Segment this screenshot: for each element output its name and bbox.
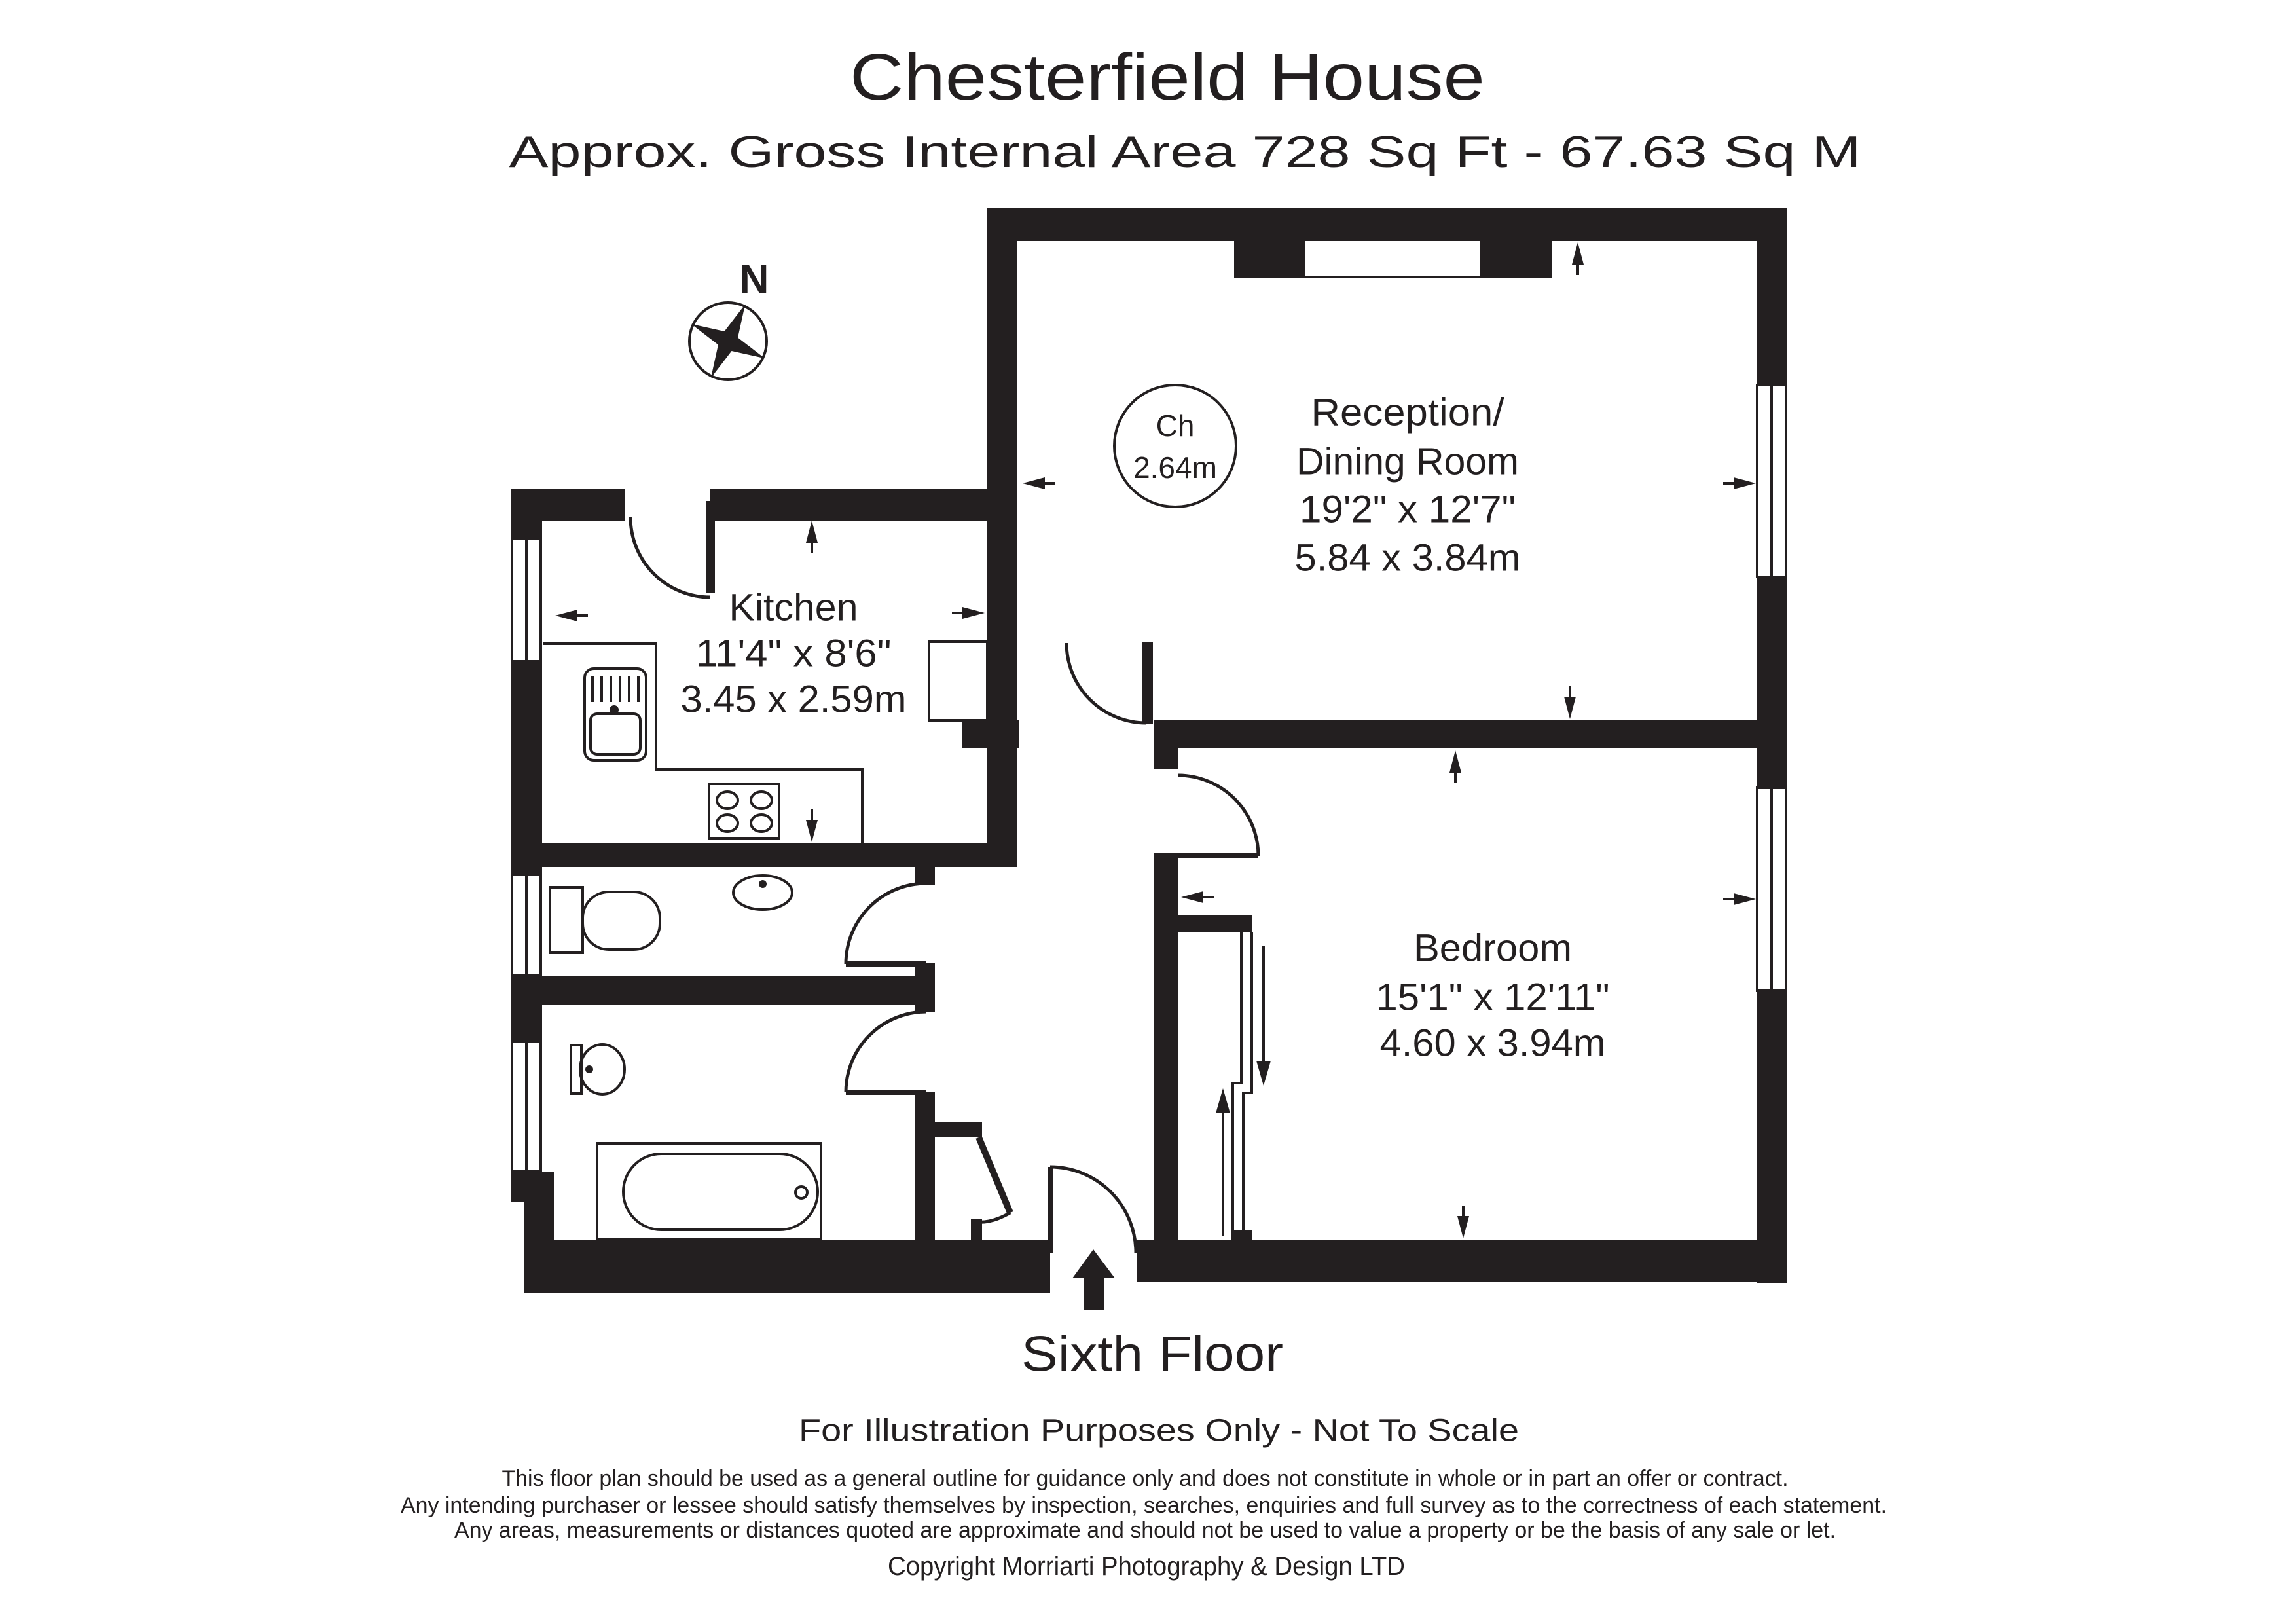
door-reception-leaf bbox=[1142, 642, 1153, 724]
arrow-bedroom-right bbox=[1734, 893, 1756, 905]
ceiling-height-value: 2.64m bbox=[1133, 451, 1217, 485]
disclaimer-line3: Any areas, measurements or distances quo… bbox=[454, 1518, 1836, 1543]
window-bedroom bbox=[1756, 788, 1787, 991]
wall-kitchen-wc-divider bbox=[511, 843, 1017, 867]
wall-hall-left bbox=[987, 208, 1017, 866]
wc-toilet-icon bbox=[550, 887, 660, 953]
scale-note: For Illustration Purposes Only - Not To … bbox=[799, 1414, 1519, 1449]
bedroom-wardrobe bbox=[1178, 915, 1271, 1244]
disclaimer-line1: This floor plan should be used as a gene… bbox=[502, 1466, 1789, 1491]
wall-kitchen-top-right bbox=[710, 489, 987, 521]
kitchen-size-metric: 3.45 x 2.59m bbox=[681, 678, 907, 721]
door-reception bbox=[1066, 642, 1153, 724]
window-bathroom bbox=[511, 1041, 542, 1172]
door-bedroom bbox=[1178, 775, 1258, 856]
door-kitchen-leaf bbox=[706, 501, 715, 593]
wall-cupboard-stub bbox=[962, 720, 1019, 748]
compass-north-label: N bbox=[740, 257, 769, 303]
reception-name-line2: Dining Room bbox=[1296, 441, 1519, 483]
arrow-bedroom-down bbox=[1457, 1216, 1469, 1238]
ceiling-height-label: Ch bbox=[1156, 409, 1195, 443]
door-kitchen-arc bbox=[630, 517, 710, 597]
kitchen-hob-icon bbox=[709, 784, 779, 838]
wall-right-upper bbox=[1757, 208, 1787, 385]
wall-kitchen-top-left bbox=[511, 489, 625, 521]
wall-right-lower bbox=[1757, 991, 1787, 1283]
arrow-reception-right bbox=[1734, 477, 1756, 489]
reception-size-metric: 5.84 x 3.84m bbox=[1295, 537, 1521, 580]
arrow-bedroom-up bbox=[1449, 750, 1461, 773]
hall-cupboard-leaf bbox=[979, 1137, 1010, 1213]
floor-label: Sixth Floor bbox=[1021, 1327, 1283, 1382]
page-subtitle: Approx. Gross Internal Area 728 Sq Ft - … bbox=[509, 127, 1861, 177]
kitchen-sink-icon bbox=[585, 669, 646, 760]
compass-star-icon bbox=[691, 304, 765, 378]
hall-cupboard-top bbox=[933, 1122, 982, 1137]
arrow-kitchen-down bbox=[806, 820, 818, 842]
door-bedroom-arc bbox=[1178, 775, 1258, 856]
arrow-bedroom-left bbox=[1181, 891, 1203, 903]
wall-reception-bedroom-divider bbox=[1154, 720, 1757, 748]
compass-rose: N bbox=[689, 257, 769, 380]
wall-left-step bbox=[511, 1172, 554, 1202]
kitchen-size-imperial: 11'4" x 8'6" bbox=[696, 633, 892, 675]
wall-wc-bath-divider bbox=[542, 976, 935, 1005]
door-bathroom-arc bbox=[846, 1012, 926, 1092]
wall-reception-top bbox=[987, 208, 1787, 241]
window-kitchen bbox=[511, 538, 542, 661]
arrow-reception-left bbox=[1023, 477, 1045, 489]
door-wc bbox=[846, 883, 926, 964]
arrow-reception-up bbox=[1572, 242, 1584, 265]
chimney-recess bbox=[1305, 241, 1480, 276]
entrance-arrow-icon bbox=[1072, 1249, 1115, 1310]
wall-bottom-left bbox=[524, 1240, 1050, 1293]
door-kitchen bbox=[630, 501, 715, 597]
wall-left-kitchen-lower bbox=[511, 661, 542, 874]
arrow-reception-down bbox=[1564, 697, 1576, 719]
door-reception-arc bbox=[1066, 643, 1146, 723]
wall-bedroom-door-jamb bbox=[1154, 748, 1178, 769]
copyright-line: Copyright Morriarti Photography & Design… bbox=[888, 1552, 1405, 1581]
door-entrance-arc bbox=[1050, 1167, 1136, 1253]
arrow-kitchen-left bbox=[555, 610, 577, 621]
reception-name-line1: Reception/ bbox=[1311, 392, 1505, 434]
window-wc bbox=[511, 874, 542, 976]
disclaimer-line2: Any intending purchaser or lessee should… bbox=[401, 1493, 1887, 1518]
wall-bedroom-left bbox=[1154, 853, 1178, 1241]
wall-bottom-right bbox=[1137, 1240, 1787, 1282]
kitchen-cupboard bbox=[929, 642, 987, 720]
door-bathroom bbox=[846, 1012, 926, 1092]
hall-cupboard-door bbox=[933, 1122, 1010, 1240]
window-reception bbox=[1756, 385, 1787, 577]
reception-size-imperial: 19'2" x 12'7" bbox=[1300, 489, 1516, 531]
wall-right-middle bbox=[1757, 577, 1787, 788]
floorplan-page: Chesterfield House Approx. Gross Interna… bbox=[0, 0, 2296, 1624]
ceiling-height-circle bbox=[1114, 385, 1236, 507]
bathroom-basin-icon bbox=[571, 1044, 625, 1094]
page-title: Chesterfield House bbox=[850, 41, 1485, 114]
kitchen-name: Kitchen bbox=[729, 587, 858, 629]
wall-left-wc-bath bbox=[511, 976, 542, 1041]
arrow-kitchen-up bbox=[806, 521, 818, 543]
ceiling-height-badge: Ch 2.64m bbox=[1114, 385, 1236, 507]
bathtub-icon bbox=[597, 1143, 821, 1240]
floorplan-canvas: Chesterfield House Approx. Gross Interna… bbox=[0, 0, 2296, 1624]
door-entrance bbox=[1050, 1167, 1136, 1253]
bedroom-size-imperial: 15'1" x 12'11" bbox=[1376, 976, 1610, 1019]
wc-basin-icon bbox=[733, 876, 792, 910]
hall-cupboard-stub bbox=[971, 1219, 982, 1240]
bedroom-name: Bedroom bbox=[1413, 927, 1572, 970]
bedroom-size-metric: 4.60 x 3.94m bbox=[1380, 1022, 1606, 1065]
door-wc-arc bbox=[846, 883, 926, 964]
hall-cupboard-arc bbox=[977, 1213, 1010, 1222]
arrow-kitchen-right bbox=[962, 607, 985, 619]
